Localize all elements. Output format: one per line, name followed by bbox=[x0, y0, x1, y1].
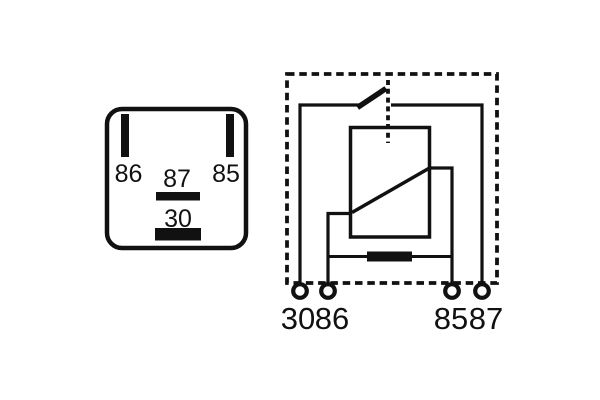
terminal-86-ring bbox=[321, 284, 335, 298]
relay-diagram-svg: 86 85 87 30 bbox=[0, 0, 600, 400]
pin-86-blade bbox=[121, 114, 129, 157]
pin-87-blade bbox=[156, 192, 200, 201]
coil-diagonal bbox=[352, 168, 430, 213]
resistor-body bbox=[367, 252, 412, 262]
wire-terminal-85 bbox=[430, 168, 453, 283]
pin-85-blade bbox=[226, 114, 234, 157]
wire-terminal-86 bbox=[328, 214, 350, 284]
relay-diagram-canvas: 86 85 87 30 bbox=[0, 0, 600, 400]
terminal-86-label: 86 bbox=[315, 301, 349, 336]
relay-circuit-schematic: 30 86 85 87 bbox=[281, 74, 503, 336]
terminal-85-label: 85 bbox=[434, 301, 468, 336]
pin-86-label: 86 bbox=[115, 160, 143, 188]
pin-30-blade bbox=[155, 228, 201, 241]
pin-87-label: 87 bbox=[163, 165, 191, 193]
terminal-87-ring bbox=[475, 284, 489, 298]
terminal-87-label: 87 bbox=[469, 301, 503, 336]
terminal-30-label: 30 bbox=[281, 301, 315, 336]
terminal-85-ring bbox=[445, 284, 459, 298]
relay-pinout-diagram: 86 85 87 30 bbox=[107, 109, 246, 248]
terminal-30-ring bbox=[293, 284, 307, 298]
switch-contact-blade bbox=[358, 89, 387, 108]
pin-85-label: 85 bbox=[212, 160, 240, 188]
coil-box bbox=[351, 128, 430, 238]
